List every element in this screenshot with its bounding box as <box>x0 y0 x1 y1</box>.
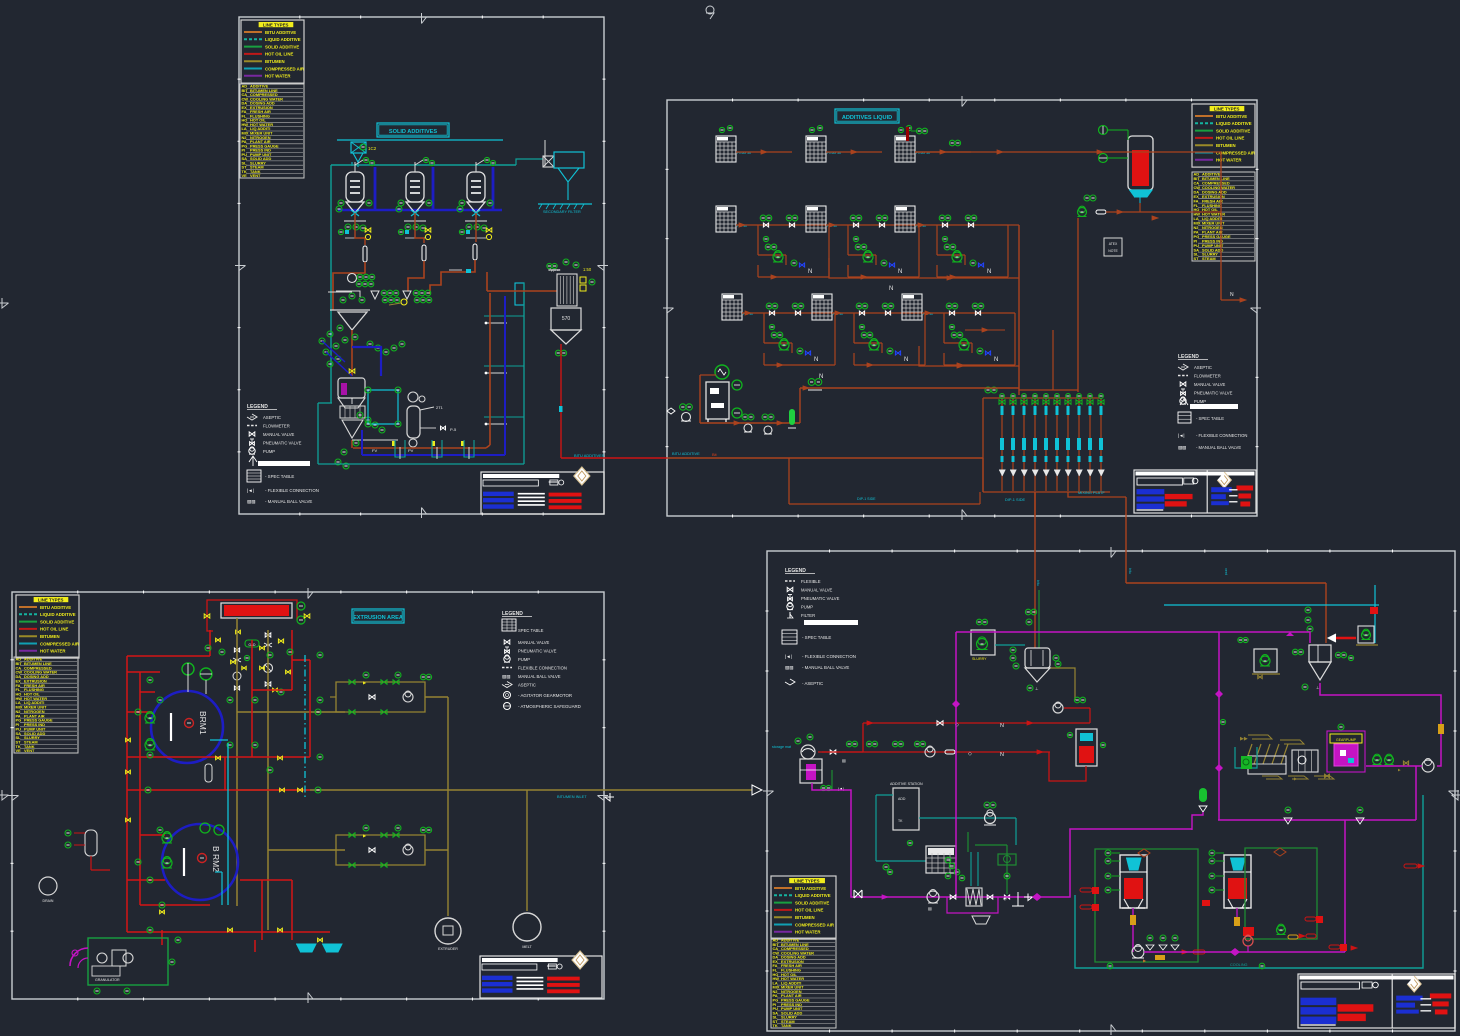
svg-text:COMPRESSED AIR: COMPRESSED AIR <box>1216 150 1256 155</box>
svg-text:ASEPTIC: ASEPTIC <box>263 415 281 420</box>
svg-text:▧▧: ▧▧ <box>785 665 794 670</box>
svg-text:EXTRUDER: EXTRUDER <box>438 947 458 951</box>
svg-text:▤: ▤ <box>842 758 846 763</box>
svg-text:BITUMEN: BITUMEN <box>795 915 815 920</box>
svg-text:SOLID ADDITIVE: SOLID ADDITIVE <box>1216 128 1250 133</box>
svg-text:HOT WATER: HOT WATER <box>795 930 821 935</box>
svg-text:MELT: MELT <box>522 945 532 949</box>
svg-text:- AGITATOR GEARMOTOR: - AGITATOR GEARMOTOR <box>518 693 572 698</box>
svg-text:ADDITIVES LIQUID: ADDITIVES LIQUID <box>842 115 892 121</box>
svg-text:- MANUAL BALL VALVE: - MANUAL BALL VALVE <box>265 499 312 504</box>
svg-text:PUMP: PUMP <box>518 657 530 662</box>
svg-text:MIXING PLATF: MIXING PLATF <box>1078 490 1105 495</box>
svg-text:BITU ADDITIVE: BITU ADDITIVE <box>672 451 700 456</box>
svg-text:LIQUID ADDITIVE: LIQUID ADDITIVE <box>40 612 76 617</box>
svg-text:MANUAL VALVE: MANUAL VALVE <box>518 640 550 645</box>
svg-text:COMPRESSED AIR: COMPRESSED AIR <box>265 66 305 71</box>
svg-text:Approx: Approx <box>549 268 561 272</box>
svg-text:TK: TK <box>898 819 903 823</box>
svg-text:EXTRUSION AREA: EXTRUSION AREA <box>353 615 403 621</box>
svg-text:ADD: ADD <box>898 797 906 801</box>
svg-text:LIQUID ADDITIVE: LIQUID ADDITIVE <box>265 37 301 42</box>
svg-text:SOLID ADDITIVE: SOLID ADDITIVE <box>795 900 829 905</box>
svg-text:bitu: bitu <box>1128 568 1132 574</box>
svg-text:▶▶: ▶▶ <box>1240 736 1248 742</box>
svg-text:N: N <box>994 357 998 363</box>
svg-text:HOT OIL LINE: HOT OIL LINE <box>265 52 293 57</box>
svg-text:◇: ◇ <box>1003 896 1007 902</box>
svg-text:LINE TYPES: LINE TYPES <box>38 597 64 602</box>
svg-text:N: N <box>987 269 991 275</box>
svg-text:BITU ADDITIVE: BITU ADDITIVE <box>265 30 296 35</box>
svg-text:|◄|: |◄| <box>785 654 792 659</box>
svg-text:- SPEC TABLE: - SPEC TABLE <box>265 474 294 479</box>
svg-text:BITUMEN: BITUMEN <box>265 59 285 64</box>
svg-text:MANUAL BALL VALVE: MANUAL BALL VALVE <box>518 674 561 679</box>
svg-text:|◄|: |◄| <box>247 488 254 493</box>
svg-text:VE: VE <box>242 173 248 178</box>
svg-text:BITU ADDITIVES: BITU ADDITIVES <box>574 453 605 458</box>
svg-text:N: N <box>814 357 818 363</box>
svg-text:HOT OIL LINE: HOT OIL LINE <box>1216 136 1244 141</box>
svg-text:▧▧: ▧▧ <box>1178 445 1186 450</box>
svg-text:- FLEXIBLE CONNECTION: - FLEXIBLE CONNECTION <box>1196 433 1247 438</box>
svg-text:N: N <box>904 357 908 363</box>
svg-text:FLOWMETER: FLOWMETER <box>1194 373 1221 378</box>
svg-text:COMPRESSED AIR: COMPRESSED AIR <box>795 922 835 927</box>
svg-text:▤: ▤ <box>928 906 932 911</box>
svg-text:DIP-1 SIDE: DIP-1 SIDE <box>1005 497 1026 502</box>
svg-text:FLOWMETER: FLOWMETER <box>263 423 290 428</box>
svg-text:- MANUAL BALL VALVE: - MANUAL BALL VALVE <box>1196 445 1241 450</box>
svg-text:1C2: 1C2 <box>368 146 377 151</box>
svg-text:LINE TYPES: LINE TYPES <box>794 878 820 883</box>
svg-text:HOT OIL LINE: HOT OIL LINE <box>795 908 823 913</box>
svg-text:N: N <box>1000 723 1004 729</box>
svg-text:N: N <box>889 286 893 292</box>
svg-text:COMPRESSED AIR: COMPRESSED AIR <box>40 641 80 646</box>
svg-text:FILTER: FILTER <box>801 613 815 618</box>
svg-text:PNEUMATIC VALVE: PNEUMATIC VALVE <box>801 596 840 601</box>
svg-text:TANK: TANK <box>781 1023 792 1028</box>
svg-text:HOT WATER: HOT WATER <box>40 649 66 654</box>
svg-text:SECONDARY FILTER: SECONDARY FILTER <box>543 210 581 214</box>
svg-text:DRAIN: DRAIN <box>43 899 54 903</box>
svg-text:PNEUMATIC VALVE: PNEUMATIC VALVE <box>263 440 302 445</box>
svg-text:- SPEC TABLE: - SPEC TABLE <box>802 635 831 640</box>
svg-text:- ASEPTIC: - ASEPTIC <box>802 681 823 686</box>
svg-text:BITUMEN: BITUMEN <box>40 634 60 639</box>
svg-text:LIQUID ADDITIVE: LIQUID ADDITIVE <box>1216 121 1252 126</box>
svg-text:HOT WATER: HOT WATER <box>265 74 291 79</box>
svg-text:VENT: VENT <box>24 748 35 753</box>
svg-text:SOLID ADDITIVE: SOLID ADDITIVE <box>265 44 299 49</box>
svg-text:- FLEXIBLE CONNECTION: - FLEXIBLE CONNECTION <box>265 488 319 493</box>
svg-text:- SPEC TABLE: - SPEC TABLE <box>1196 416 1224 421</box>
svg-text:storage mat: storage mat <box>772 745 791 749</box>
svg-text:- MANUAL BALL VALVE: - MANUAL BALL VALVE <box>802 665 849 670</box>
svg-text:N: N <box>1000 752 1004 758</box>
svg-text:bitu: bitu <box>1036 580 1040 586</box>
svg-text:▧▧: ▧▧ <box>502 674 511 679</box>
svg-text:BITU ADDITIVE: BITU ADDITIVE <box>40 605 71 610</box>
svg-text:NOTE: NOTE <box>1108 249 1118 253</box>
svg-text:- ATMOSPHERIC SAFEGUARD: - ATMOSPHERIC SAFEGUARD <box>518 704 581 709</box>
svg-text:PUMP: PUMP <box>1194 399 1206 404</box>
svg-text:LINE TYPES: LINE TYPES <box>263 22 289 27</box>
svg-text:N: N <box>898 269 902 275</box>
svg-text:PUMP: PUMP <box>263 449 275 454</box>
svg-text:⊥: ⊥ <box>1035 686 1039 691</box>
svg-text:STEAM: STEAM <box>1202 256 1216 261</box>
svg-text:2T1: 2T1 <box>436 405 444 410</box>
svg-text:570: 570 <box>562 316 571 322</box>
svg-text:ASEPTIC: ASEPTIC <box>518 682 536 687</box>
svg-text:MANUAL VALVE: MANUAL VALVE <box>1194 382 1226 387</box>
svg-text:LIQUID ADDITIVE: LIQUID ADDITIVE <box>795 893 831 898</box>
svg-text:COOLING: COOLING <box>1230 963 1248 967</box>
svg-text:VENT: VENT <box>250 173 261 178</box>
svg-text:◇: ◇ <box>968 751 972 757</box>
svg-text:N: N <box>1230 292 1234 298</box>
svg-text:GRANULATOR: GRANULATOR <box>95 978 120 982</box>
svg-text:|◄|: |◄| <box>1178 433 1185 438</box>
svg-text:BRM1: BRM1 <box>198 711 208 735</box>
svg-text:SOLID ADDITIVES: SOLID ADDITIVES <box>389 129 438 135</box>
svg-text:ST: ST <box>1194 256 1200 261</box>
svg-text:SOLID ADDITIVE: SOLID ADDITIVE <box>40 619 74 624</box>
svg-text:1:50: 1:50 <box>583 267 592 272</box>
svg-text:▧▧: ▧▧ <box>247 499 256 504</box>
svg-text:vent: vent <box>1224 568 1228 575</box>
svg-text:- FLEXIBLE CONNECTION: - FLEXIBLE CONNECTION <box>802 654 856 659</box>
svg-text:PUMP: PUMP <box>801 604 813 609</box>
svg-text:MANUAL VALVE: MANUAL VALVE <box>263 432 295 437</box>
svg-text:LINE TYPES: LINE TYPES <box>1214 106 1240 111</box>
svg-text:BITUMEN: BITUMEN <box>1216 143 1236 148</box>
svg-text:N: N <box>808 269 812 275</box>
svg-text:MANUAL VALVE: MANUAL VALVE <box>801 587 833 592</box>
svg-text:HOT OIL LINE: HOT OIL LINE <box>40 627 68 632</box>
svg-text:B RM2: B RM2 <box>211 846 221 872</box>
svg-text:ASEPTIC: ASEPTIC <box>1194 365 1212 370</box>
svg-text:TK: TK <box>773 1023 778 1028</box>
svg-text:FLEXIBLE CONNECTION: FLEXIBLE CONNECTION <box>518 665 567 670</box>
svg-text:PNEUMATIC VALVE: PNEUMATIC VALVE <box>1194 390 1233 395</box>
svg-text:SLURRY: SLURRY <box>972 657 987 661</box>
svg-text:BITU ADDITIVE: BITU ADDITIVE <box>795 886 826 891</box>
svg-text:HOT WATER: HOT WATER <box>1216 158 1242 163</box>
svg-text:BITU ADDITIVE: BITU ADDITIVE <box>1216 114 1247 119</box>
svg-text:FLEXIBLE: FLEXIBLE <box>801 579 821 584</box>
svg-text:SPEC TABLE: SPEC TABLE <box>518 628 544 633</box>
svg-text:BITUMEN INLET: BITUMEN INLET <box>557 794 587 799</box>
svg-text:DIP-1 SIDE: DIP-1 SIDE <box>857 497 876 501</box>
svg-text:P-5: P-5 <box>450 427 457 432</box>
svg-text:GEARPUMP: GEARPUMP <box>1336 738 1357 742</box>
svg-text:ATEX: ATEX <box>1109 242 1118 246</box>
svg-text:PNEUMATIC VALVE: PNEUMATIC VALVE <box>518 648 557 653</box>
svg-text:VE: VE <box>16 748 22 753</box>
svg-text:ADDITIVE STATION: ADDITIVE STATION <box>890 782 923 786</box>
